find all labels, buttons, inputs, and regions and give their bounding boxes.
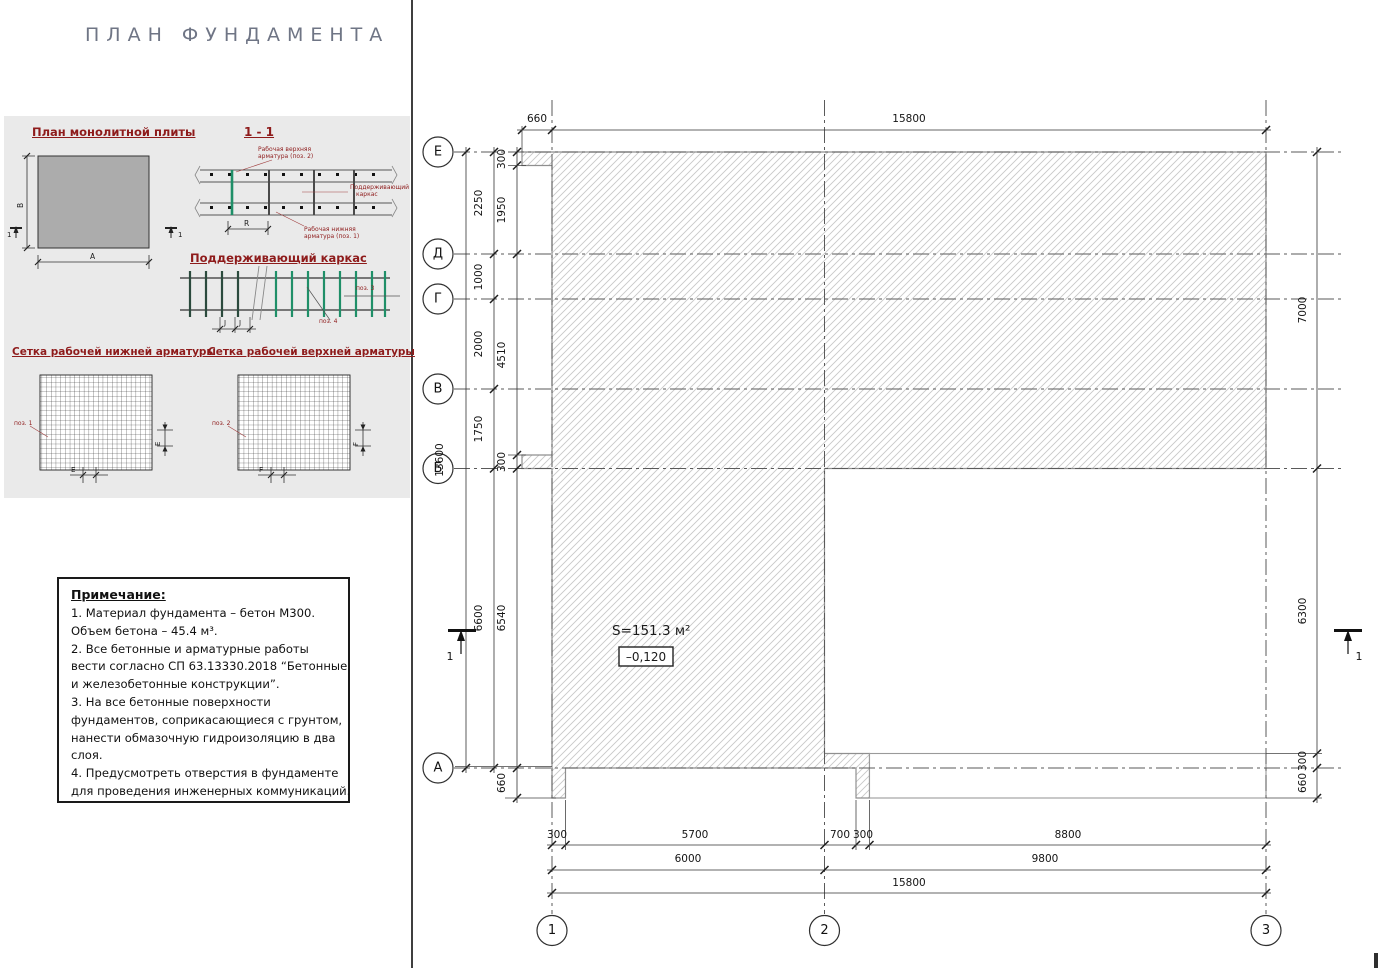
dim-label: 300 bbox=[547, 829, 567, 841]
elevation-label: –0,120 bbox=[626, 650, 666, 664]
dim-label: 5700 bbox=[682, 829, 709, 841]
axis-label-col: 2 bbox=[820, 923, 828, 938]
dim-label: 13600 bbox=[434, 443, 446, 476]
section-cut-label: 1 bbox=[1356, 650, 1363, 663]
strip-footing bbox=[870, 754, 1267, 799]
dim-label: 6540 bbox=[496, 605, 508, 632]
dim-label: 15800 bbox=[892, 877, 925, 889]
dim-label: 700 bbox=[830, 829, 850, 841]
dim-label: 15800 bbox=[892, 113, 925, 125]
dim-label: 300 bbox=[496, 452, 508, 472]
axis-label-col: 1 bbox=[548, 923, 556, 938]
dim-label: 300 bbox=[1297, 751, 1309, 771]
dim-label: 6600 bbox=[473, 605, 485, 632]
section-cut-label: 1 bbox=[447, 650, 454, 663]
dim-label: 660 bbox=[527, 113, 547, 125]
dim-label: 8800 bbox=[1055, 829, 1082, 841]
dim-label: 7000 bbox=[1297, 297, 1309, 324]
dim-label: 9800 bbox=[1032, 853, 1059, 865]
dim-label: 2000 bbox=[473, 331, 485, 358]
dim-label: 1750 bbox=[473, 416, 485, 443]
dim-label: 4510 bbox=[496, 342, 508, 369]
axis-label-row: А bbox=[434, 761, 443, 776]
axis-label-col: 3 bbox=[1262, 923, 1270, 938]
dim-label: 1000 bbox=[473, 264, 485, 291]
drawing-sheet: ПЛАН ФУНДАМЕНТА bbox=[0, 0, 1378, 968]
area-label: S=151.3 м² bbox=[612, 623, 690, 639]
slab-outline bbox=[522, 152, 1266, 798]
dim-label: 1950 bbox=[496, 197, 508, 224]
axis-label-row: В bbox=[434, 382, 443, 397]
dim-label: 6000 bbox=[675, 853, 702, 865]
axis-label-row: Г bbox=[434, 292, 442, 307]
dim-label: 6300 bbox=[1297, 598, 1309, 625]
dim-label: 300 bbox=[853, 829, 873, 841]
dim-label: 660 bbox=[496, 773, 508, 793]
dim-label: 660 bbox=[1297, 773, 1309, 793]
dim-label: 300 bbox=[496, 149, 508, 169]
foundation-plan: S=151.3 м² –0,120 ЕДГВБА1236601580030057… bbox=[0, 0, 1378, 968]
axis-label-row: Е bbox=[434, 145, 442, 160]
dim-label: 2250 bbox=[473, 190, 485, 217]
axis-label-row: Д bbox=[433, 247, 443, 262]
